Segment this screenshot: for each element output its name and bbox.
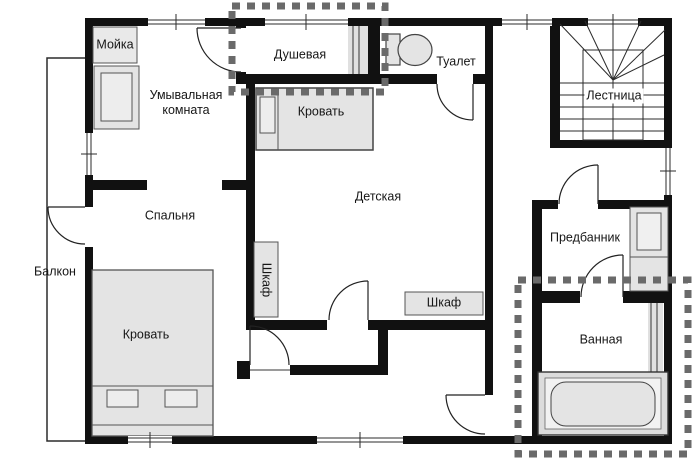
window [588,14,638,30]
wall-shower-right [368,18,380,84]
bathroom-partition [648,303,663,372]
door-corridor [250,326,290,370]
anteroom-label: Предбанник [550,231,620,246]
shower-label: Душевая [274,48,326,63]
balcony-label: Балкон [34,265,76,280]
window [660,148,676,195]
window [148,14,205,30]
staircase-drawing [560,20,665,140]
door-bathroom [581,255,623,297]
nursery-bed-label: Кровать [298,105,345,120]
door-anteroom [559,165,598,204]
nursery-label: Детская [355,190,401,205]
wall-bedroom-top-right [222,180,246,190]
wall-stairs-left [550,18,560,148]
hall-wardrobe-label: Шкаф [427,296,461,311]
window [265,14,348,30]
bedroom-label: Спальня [145,209,195,224]
bathtub [538,372,668,435]
wall-shower-bottom [243,74,380,84]
door-washroom [197,28,241,72]
bedroom-bed-label: Кровать [123,328,170,343]
shower-partition [348,26,368,74]
toilet-label: Туалет [436,55,476,70]
sink-label: Мойка [96,38,133,53]
sink-fixture [94,66,139,129]
toilet-fixture [386,34,432,66]
door-balcony [48,207,85,244]
wall-bedroom-top-left [93,180,147,190]
door-lower-hall [446,395,485,434]
wall-nursery-right [485,18,493,395]
door-toilet [437,84,473,120]
balcony-outline [47,58,88,441]
wall-corridor-cap [237,361,250,379]
nursery-wardrobe-label: Шкаф [259,263,274,297]
window [502,14,552,30]
washroom-label: Умывальная комната [135,88,237,118]
staircase-label: Лестница [584,89,643,104]
window [81,133,97,175]
anteroom-heater [630,207,668,291]
window [317,432,403,448]
bedroom-bed [92,270,213,436]
bathroom-label: Ванная [580,333,623,348]
wall-stairs-bottom [550,140,672,148]
floor-plan: Мойка Умывальная комната Душевая Туалет … [0,0,700,476]
wall-toilet-bottom [380,74,493,84]
door-nursery [329,281,368,320]
